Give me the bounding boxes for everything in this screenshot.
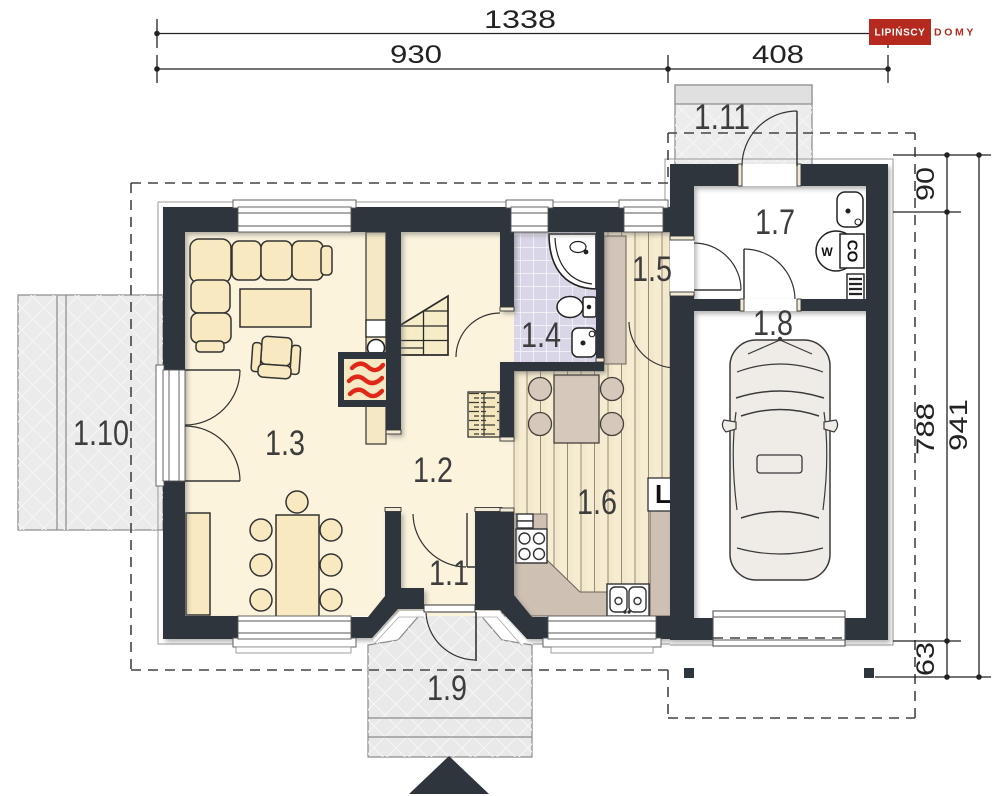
svg-text:CO: CO (844, 240, 861, 263)
svg-text:1338: 1338 (484, 6, 556, 34)
svg-text:W: W (821, 245, 833, 259)
svg-text:1.2: 1.2 (413, 451, 453, 490)
svg-text:1.7: 1.7 (755, 203, 795, 242)
svg-text:1.10: 1.10 (73, 414, 129, 453)
svg-text:1.8: 1.8 (753, 304, 793, 343)
svg-text:1.4: 1.4 (521, 316, 561, 355)
svg-text:1.3: 1.3 (265, 424, 305, 463)
svg-text:1.9: 1.9 (427, 669, 467, 708)
svg-text:788: 788 (912, 403, 940, 455)
svg-text:1.6: 1.6 (577, 483, 617, 522)
svg-text:90: 90 (912, 167, 940, 201)
svg-text:1.11: 1.11 (694, 98, 750, 137)
svg-text:DOMY: DOMY (934, 27, 976, 39)
svg-text:1.1: 1.1 (429, 554, 469, 593)
svg-text:408: 408 (752, 41, 804, 69)
svg-text:63: 63 (912, 642, 940, 676)
svg-text:941: 941 (945, 399, 973, 451)
svg-text:1.5: 1.5 (632, 250, 672, 289)
svg-text:L: L (655, 479, 671, 509)
svg-text:930: 930 (390, 41, 442, 69)
svg-text:LIPIŃSCY: LIPIŃSCY (875, 26, 926, 39)
